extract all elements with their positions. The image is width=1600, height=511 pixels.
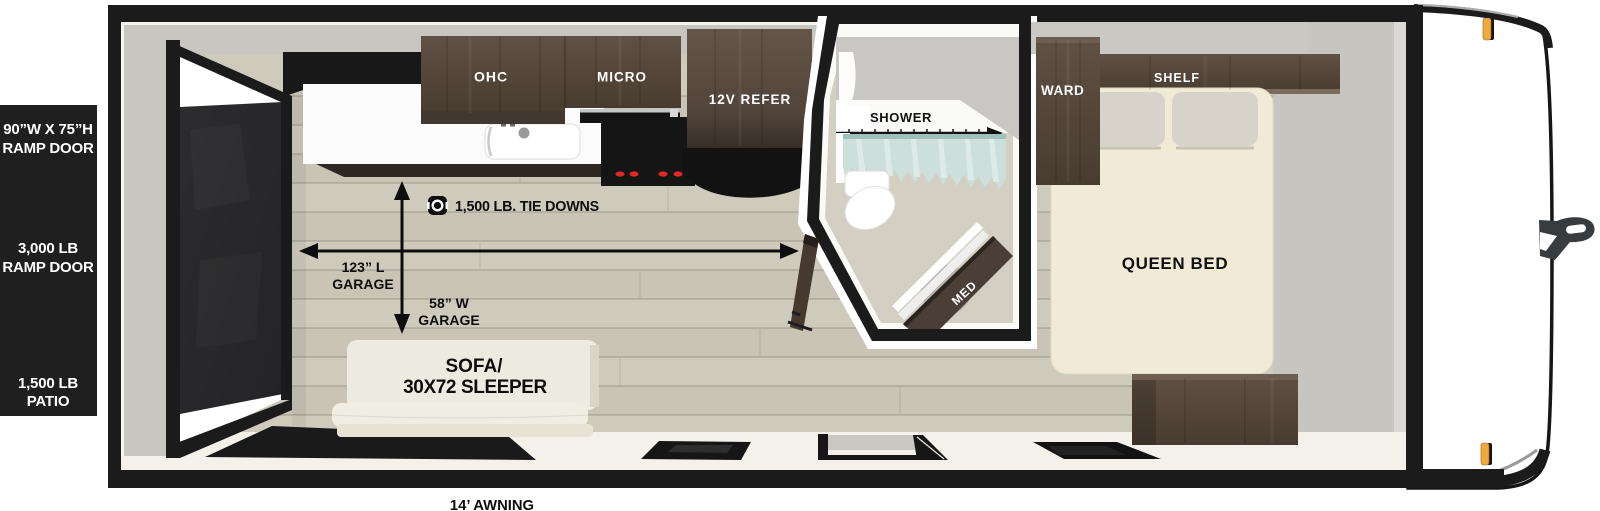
svg-text:1,500 LB. TIE DOWNS: 1,500 LB. TIE DOWNS	[455, 199, 599, 215]
svg-text:WARD: WARD	[1041, 83, 1084, 98]
svg-text:QUEEN BED: QUEEN BED	[1122, 254, 1228, 273]
svg-text:30X72 SLEEPER: 30X72 SLEEPER	[403, 377, 547, 398]
svg-text:SHOWER: SHOWER	[870, 110, 932, 125]
svg-text:PATIO: PATIO	[27, 393, 70, 410]
svg-text:123” L: 123” L	[342, 259, 385, 275]
svg-text:90”W X 75”H: 90”W X 75”H	[3, 121, 93, 138]
svg-text:SOFA/: SOFA/	[445, 356, 503, 377]
svg-text:58” W: 58” W	[429, 295, 469, 311]
svg-text:12V REFER: 12V REFER	[709, 92, 792, 107]
svg-text:SHELF: SHELF	[1154, 71, 1200, 85]
svg-text:OHC: OHC	[474, 69, 508, 85]
svg-text:1,500 LB: 1,500 LB	[18, 375, 78, 392]
svg-text:RAMP DOOR: RAMP DOOR	[2, 140, 94, 157]
svg-text:3,000 LB: 3,000 LB	[18, 240, 78, 257]
svg-text:GARAGE: GARAGE	[418, 312, 479, 328]
svg-text:RAMP DOOR: RAMP DOOR	[2, 259, 94, 276]
svg-text:GARAGE: GARAGE	[332, 276, 393, 292]
svg-text:14’ AWNING: 14’ AWNING	[450, 498, 534, 511]
